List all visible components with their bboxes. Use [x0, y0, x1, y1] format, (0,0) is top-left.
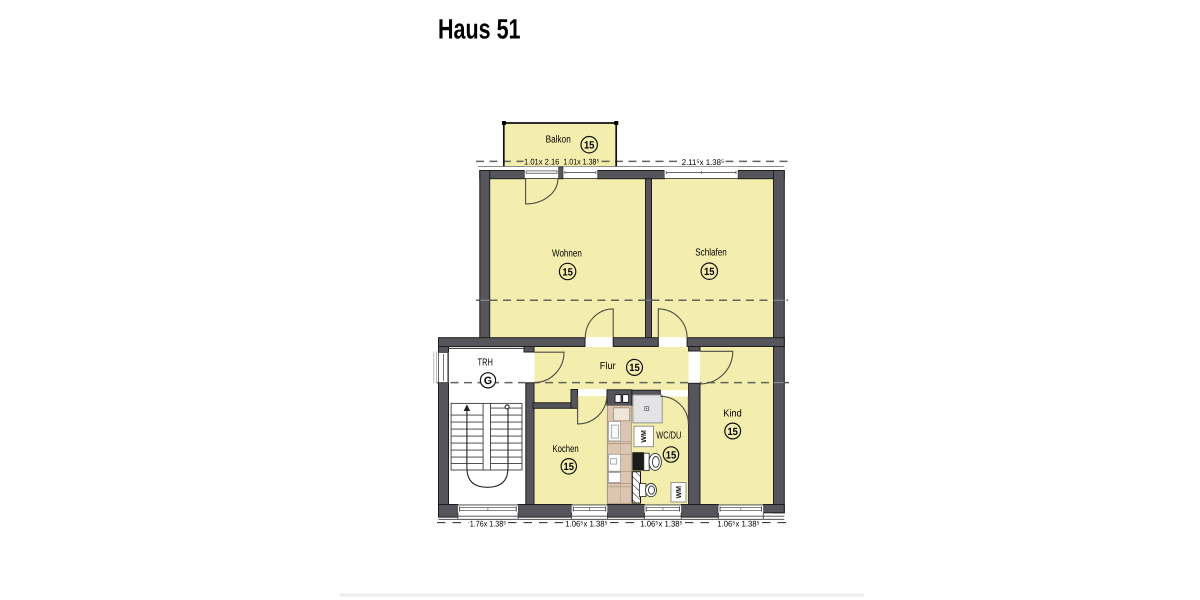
- svg-text:Wohnen: Wohnen: [552, 248, 582, 259]
- svg-text:G: G: [484, 375, 492, 387]
- svg-text:1.01x 2.16: 1.01x 2.16: [524, 158, 560, 167]
- svg-text:TRH: TRH: [478, 358, 493, 369]
- svg-text:1.76x 1.38⁵: 1.76x 1.38⁵: [470, 519, 507, 528]
- svg-text:2.11⁵x 1.38⁵: 2.11⁵x 1.38⁵: [682, 158, 725, 167]
- svg-text:15: 15: [666, 449, 677, 461]
- svg-text:1.06⁵x 1.38⁵: 1.06⁵x 1.38⁵: [565, 519, 608, 528]
- svg-text:1.06⁵x 1.38⁵: 1.06⁵x 1.38⁵: [717, 519, 760, 528]
- svg-text:15: 15: [562, 266, 573, 278]
- svg-text:Flur: Flur: [600, 361, 616, 372]
- svg-text:15: 15: [704, 266, 715, 278]
- svg-text:15: 15: [584, 140, 595, 152]
- svg-text:Kind: Kind: [723, 408, 742, 419]
- svg-text:15: 15: [629, 362, 640, 374]
- svg-text:WM: WM: [641, 430, 648, 443]
- svg-text:1.06⁵x 1.38⁵: 1.06⁵x 1.38⁵: [640, 519, 683, 528]
- svg-text:Schlafen: Schlafen: [695, 247, 727, 258]
- svg-text:WM: WM: [676, 486, 683, 499]
- svg-text:15: 15: [727, 426, 738, 438]
- svg-text:Haus 51: Haus 51: [438, 13, 521, 44]
- svg-text:1.01x 1.38⁵: 1.01x 1.38⁵: [563, 158, 599, 167]
- svg-text:Balkon: Balkon: [546, 134, 571, 145]
- svg-text:WC/DU: WC/DU: [656, 431, 681, 442]
- svg-text:Kochen: Kochen: [552, 444, 578, 455]
- svg-text:15: 15: [564, 461, 575, 473]
